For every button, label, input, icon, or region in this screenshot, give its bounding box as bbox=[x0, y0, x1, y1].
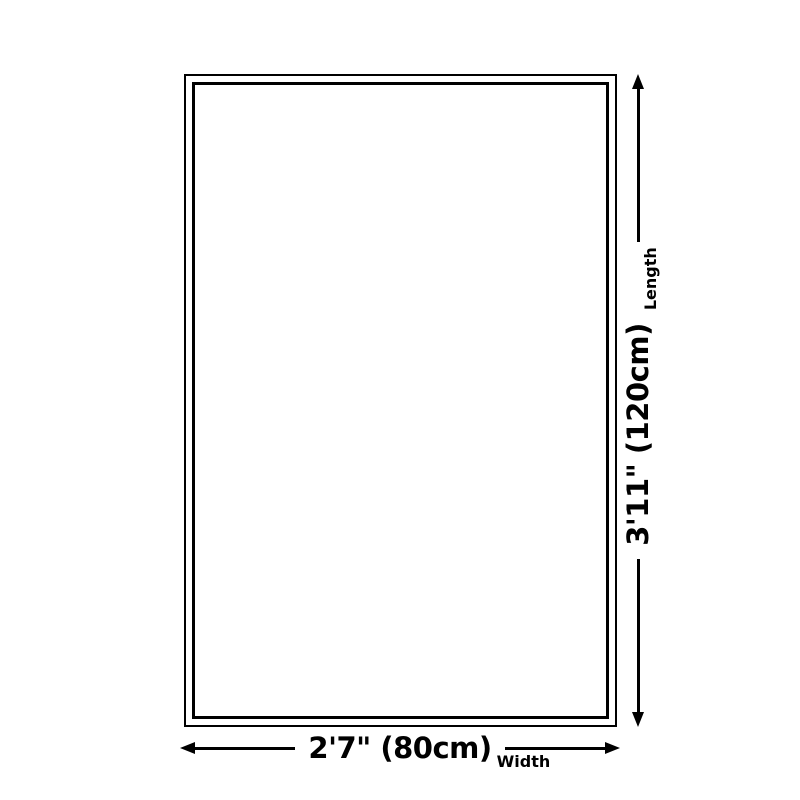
dimension-diagram: 2'7" (80cm) Width 3'11" (120cm) Length bbox=[0, 0, 800, 800]
width-arrow-line-right: Width bbox=[505, 747, 605, 750]
length-arrow-line-top bbox=[637, 89, 640, 242]
width-caption: Width bbox=[497, 754, 551, 770]
arrow-up-icon bbox=[632, 74, 644, 89]
width-arrow-line-left bbox=[195, 747, 295, 750]
rug-outline bbox=[184, 74, 617, 727]
length-value: 3'11" (120cm) bbox=[624, 323, 653, 546]
arrow-down-icon bbox=[632, 712, 644, 727]
width-value: 2'7" (80cm) bbox=[308, 734, 491, 763]
rug-inner-outline bbox=[192, 82, 609, 719]
length-arrow-line-bottom bbox=[637, 559, 640, 712]
length-caption: Length bbox=[643, 247, 659, 310]
arrow-right-icon bbox=[605, 742, 620, 754]
width-dimension-arrow: 2'7" (80cm) Width bbox=[180, 726, 620, 770]
arrow-left-icon bbox=[180, 742, 195, 754]
length-dimension-arrow: 3'11" (120cm) Length bbox=[615, 74, 661, 727]
